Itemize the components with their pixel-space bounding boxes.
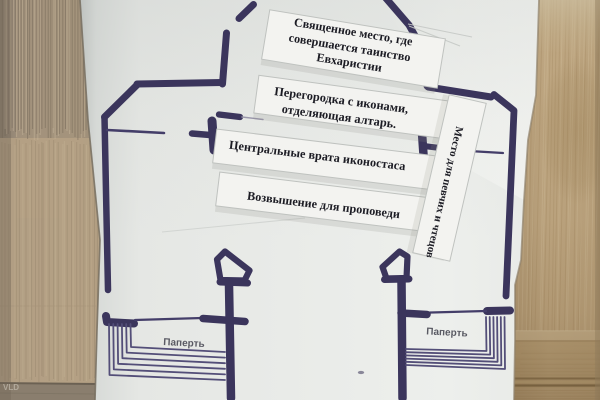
svg-text:Паперть: Паперть <box>426 326 468 339</box>
svg-text:VLD: VLD <box>3 383 19 392</box>
svg-text:Паперть: Паперть <box>163 337 205 350</box>
